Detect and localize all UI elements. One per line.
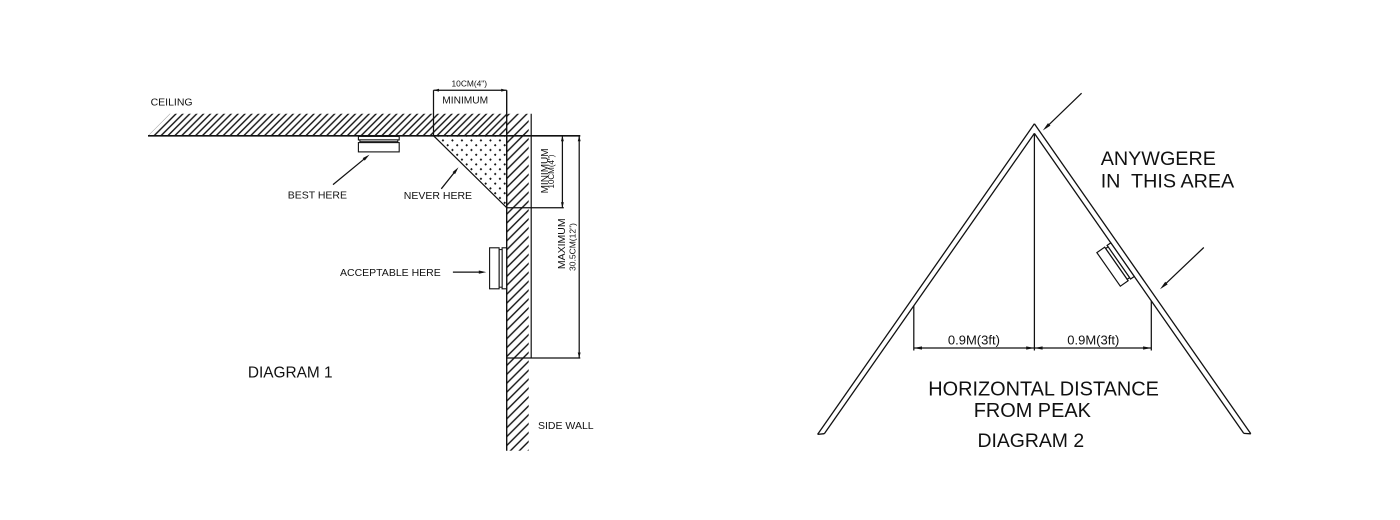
svg-text:SIDE WALL: SIDE WALL [538, 420, 594, 432]
svg-text:MAXIMUM: MAXIMUM [556, 218, 568, 269]
svg-text:DIAGRAM 2: DIAGRAM 2 [977, 430, 1084, 452]
svg-text:IN THIS AREA: IN THIS AREA [1101, 170, 1235, 192]
svg-text:ANYWGERE: ANYWGERE [1101, 148, 1216, 170]
svg-text:DIAGRAM 1: DIAGRAM 1 [248, 364, 333, 381]
svg-text:0.9M(3ft): 0.9M(3ft) [1067, 333, 1119, 348]
svg-text:30.5CM(12"): 30.5CM(12") [568, 223, 578, 271]
svg-text:10CM(4"): 10CM(4") [547, 154, 556, 188]
svg-text:CEILING: CEILING [151, 96, 193, 108]
svg-text:HORIZONTAL DISTANCE: HORIZONTAL DISTANCE [928, 378, 1159, 400]
svg-text:BEST HERE: BEST HERE [288, 190, 347, 202]
svg-text:ACCEPTABLE HERE: ACCEPTABLE HERE [340, 267, 441, 279]
svg-text:FROM PEAK: FROM PEAK [974, 400, 1092, 422]
svg-text:MINIMUM: MINIMUM [442, 95, 488, 106]
svg-text:10CM(4"): 10CM(4") [452, 79, 488, 89]
svg-text:NEVER HERE: NEVER HERE [404, 190, 472, 202]
svg-text:0.9M(3ft): 0.9M(3ft) [948, 333, 1000, 348]
